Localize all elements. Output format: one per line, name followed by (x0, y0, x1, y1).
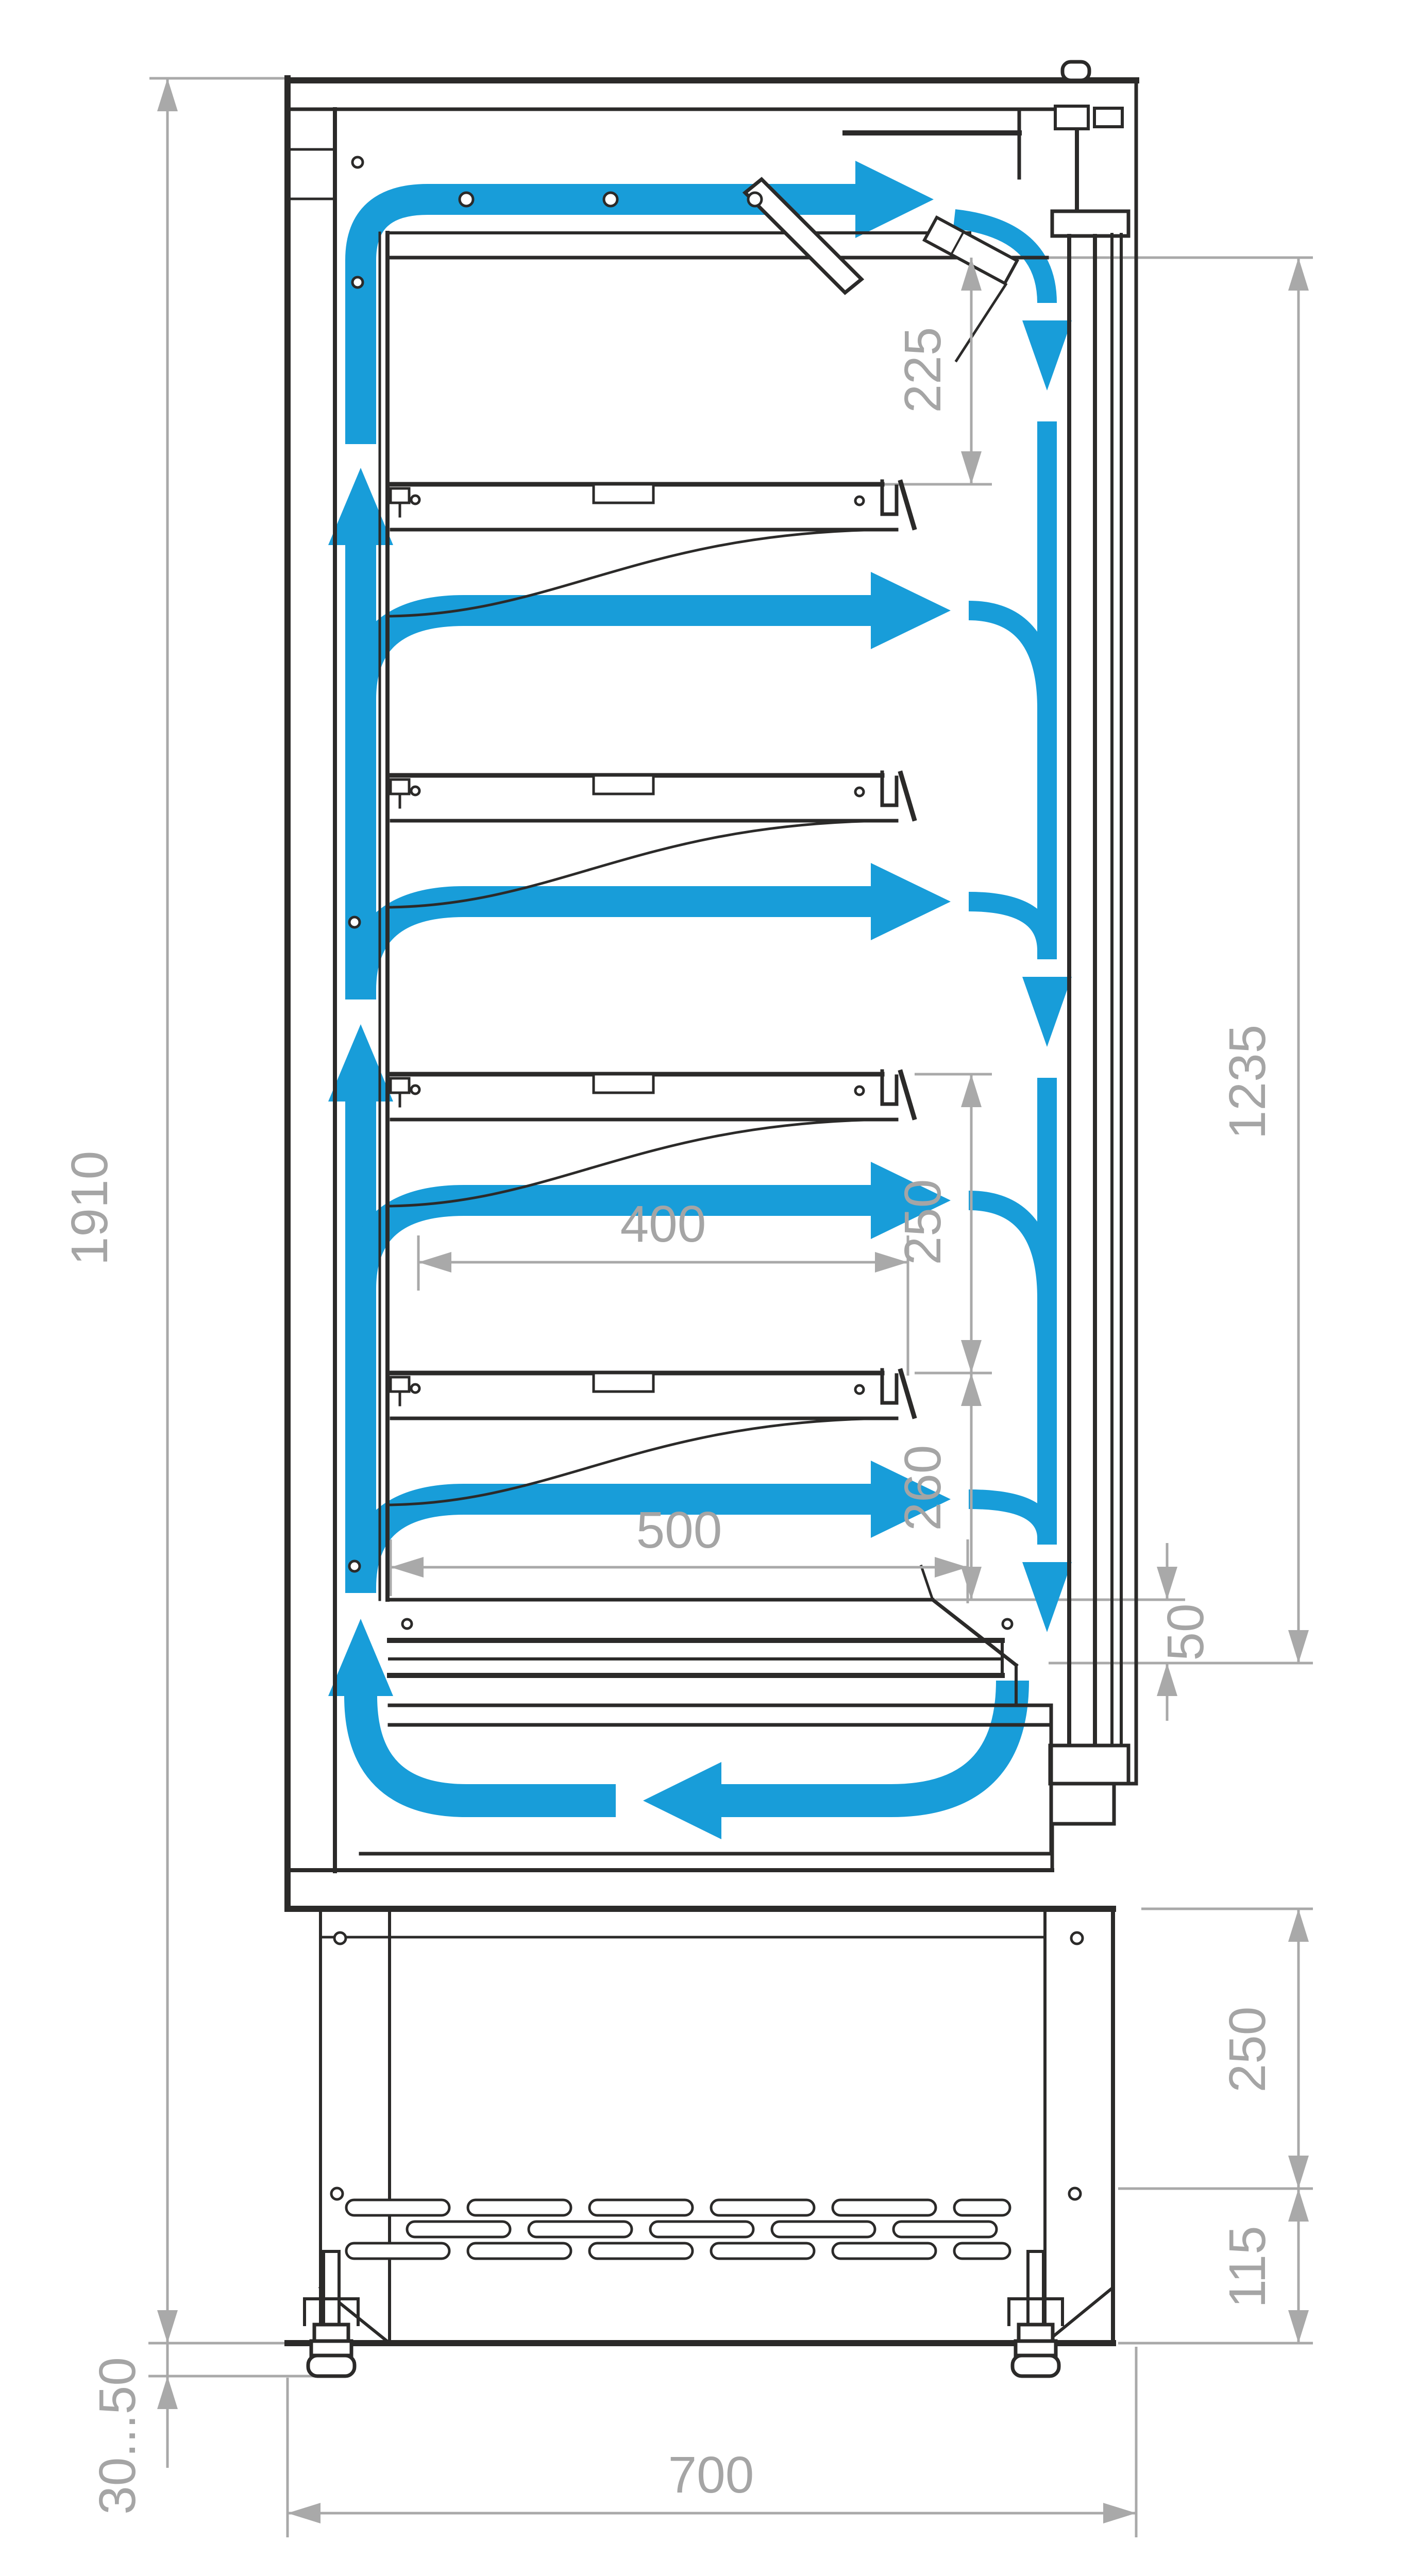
curtain-down-arrow-top-icon (1022, 320, 1072, 391)
shelf2-right-arrow-icon (871, 863, 951, 940)
shelf3-air-branch (361, 1200, 871, 1289)
shelf2-air-branch (361, 902, 871, 990)
label-overall-height: 1910 (61, 1151, 119, 1265)
curtain-join-3 (969, 1200, 1047, 1298)
label-base-height: 250 (1219, 2007, 1276, 2093)
dimension-lines (167, 78, 1298, 2513)
adjustable-foot-left (305, 2251, 358, 2376)
hinge-knuckle (1062, 62, 1089, 80)
airflow-bands (361, 199, 1047, 1801)
screws-and-holes (331, 157, 1083, 2199)
label-air-curtain: 1235 (1219, 1025, 1276, 1139)
ticket-strip (901, 773, 914, 819)
door-top-rail (1052, 211, 1128, 236)
ticket-strip (901, 1072, 914, 1117)
ticket-strip (901, 482, 914, 528)
label-canopy-gap: 225 (894, 327, 952, 413)
curtain-join-4 (969, 1499, 1047, 1538)
return-left-arrow-icon (643, 1762, 721, 1839)
shelf4-air-branch (361, 1499, 871, 1588)
label-outlet-gap: 50 (1157, 1603, 1214, 1660)
air-deflector (956, 284, 1006, 361)
canopy-front (745, 109, 1019, 361)
label-shelf-spacing: 250 (894, 1179, 952, 1265)
duct-up-arrow-bottom-icon (328, 1619, 393, 1696)
airflow-arrowheads (328, 161, 1072, 1839)
shelf1-right-arrow-icon (871, 572, 951, 649)
label-deck-depth: 500 (636, 1501, 722, 1559)
air-return-left-curve (361, 1696, 616, 1801)
cabinet-section-diagram: 1910 225 1235 250 260 400 500 50 250 115… (0, 0, 1417, 2576)
duct-up-arrow-middle-icon (328, 1024, 393, 1101)
label-plinth-height: 115 (1219, 2226, 1276, 2308)
curtain-join-1 (969, 611, 1047, 708)
label-last-shelf-gap: 260 (894, 1445, 952, 1531)
label-depth: 700 (668, 2446, 754, 2504)
curtain-down-arrow-middle-icon (1022, 977, 1072, 1047)
duct-up-arrow-top-icon (328, 468, 393, 545)
left-wall (288, 78, 335, 1909)
label-leg-adjust: 30...50 (89, 2357, 146, 2515)
front-under-door (1052, 1784, 1136, 1870)
adjustable-foot-right (1009, 2251, 1062, 2376)
curtain-join-2 (969, 902, 1047, 951)
door-bottom-rail (1050, 1745, 1128, 1784)
duct-top-elbow-discharge (361, 199, 855, 444)
curtain-down-arrow-bottom-icon (1022, 1562, 1072, 1632)
ventilation-grille (346, 2200, 1010, 2259)
shelf1-air-branch (361, 611, 871, 699)
ticket-strip (901, 1371, 914, 1416)
glass-door (1050, 80, 1136, 1870)
air-return-right-curve (721, 1681, 1013, 1801)
top-discharge-right-arrow-icon (855, 161, 934, 238)
diagram-page: 1910 225 1235 250 260 400 500 50 250 115… (0, 0, 1417, 2576)
airflow (328, 161, 1072, 1839)
dimension-reference-lines (148, 78, 1313, 2537)
top-cap (288, 62, 1136, 109)
base-compartment (288, 1909, 1113, 2343)
label-shelf-depth: 400 (620, 1195, 706, 1253)
